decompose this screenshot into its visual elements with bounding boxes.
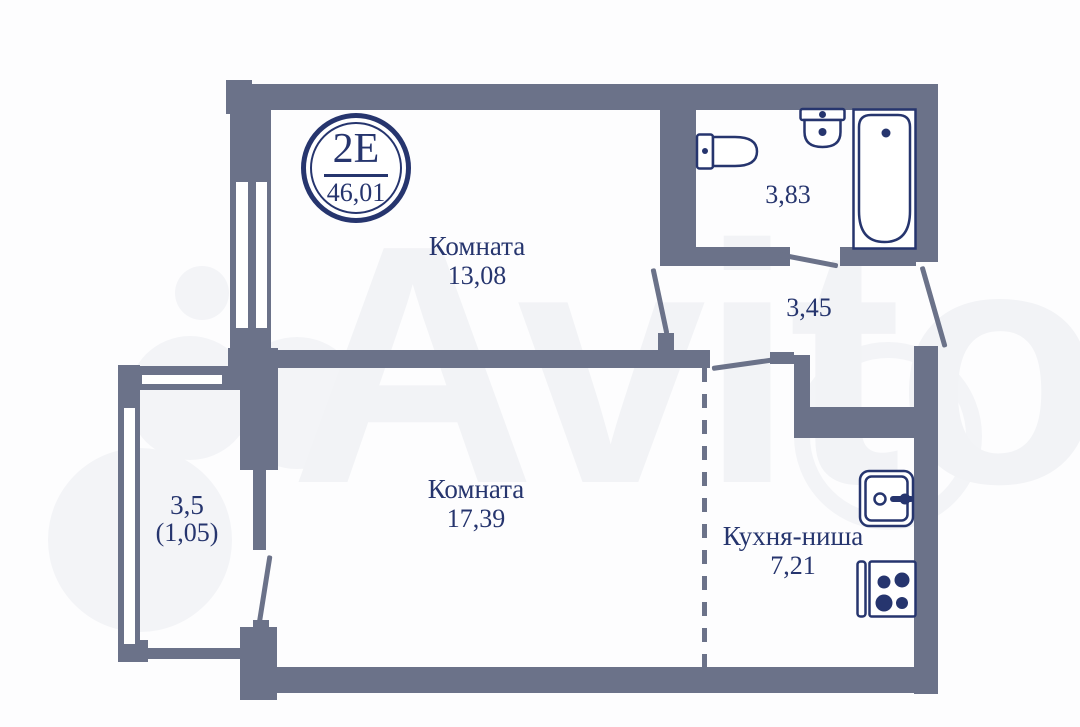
wall-bathroom-bottom-left bbox=[660, 247, 790, 266]
room-area: 3,45 bbox=[786, 293, 832, 322]
bathtub-icon bbox=[852, 108, 918, 250]
wall-balcony-room-upper bbox=[240, 384, 278, 470]
room-area: 17,39 bbox=[428, 506, 525, 532]
toilet-icon bbox=[695, 132, 761, 172]
wall-bottom bbox=[243, 667, 938, 693]
room-area: 7,21 bbox=[723, 553, 864, 579]
kitchen-niche-dashed-line bbox=[702, 368, 707, 667]
unit-type: 2Е bbox=[333, 128, 380, 170]
room-label-main: Комната 17,39 bbox=[428, 476, 525, 532]
room-area-coefficient: (1,05) bbox=[156, 520, 219, 546]
room-name: Комната bbox=[428, 476, 525, 503]
room-name: Кухня-ниша bbox=[723, 523, 864, 550]
stove-icon bbox=[856, 560, 918, 620]
room-label-bathroom: 3,83 bbox=[765, 182, 811, 208]
room-area: 3,83 bbox=[765, 180, 811, 209]
floor-plan: Avito bbox=[0, 0, 1080, 727]
window-glazing bbox=[236, 182, 248, 328]
room-label-kitchen: Кухня-ниша 7,21 bbox=[723, 523, 864, 579]
wall-room-door-jamb bbox=[658, 333, 674, 350]
room-name: Комната bbox=[429, 233, 526, 260]
watermark-dot-icon bbox=[175, 266, 229, 320]
balcony-window-glazing bbox=[142, 375, 222, 384]
door-leaf-balcony bbox=[257, 555, 273, 623]
bathroom-sink-icon bbox=[799, 107, 847, 151]
wall-right-lower bbox=[914, 346, 938, 694]
wall-balcony-bottom bbox=[134, 648, 244, 659]
wall-balcony-room-thin bbox=[253, 470, 266, 550]
wall-middle bbox=[230, 350, 710, 368]
room-area: 13,08 bbox=[429, 263, 526, 289]
room-label-hallway: 3,45 bbox=[786, 295, 832, 321]
wall-niche-bottom bbox=[794, 407, 915, 438]
window-glazing bbox=[256, 182, 267, 328]
room-area: 3,5 bbox=[156, 492, 219, 519]
unit-badge-inner-ring: 2Е 46,01 bbox=[310, 122, 402, 214]
badge-divider bbox=[324, 174, 388, 177]
balcony-window-glazing bbox=[124, 408, 135, 644]
wall-bathroom-divider bbox=[660, 110, 696, 266]
unit-total-area: 46,01 bbox=[327, 180, 386, 206]
room-label-balcony: 3,5 (1,05) bbox=[156, 492, 219, 546]
kitchen-sink-icon bbox=[858, 469, 916, 529]
room-label-top: Комната 13,08 bbox=[429, 233, 526, 289]
unit-badge: 2Е 46,01 bbox=[301, 113, 411, 223]
wall-right-upper bbox=[915, 84, 938, 262]
